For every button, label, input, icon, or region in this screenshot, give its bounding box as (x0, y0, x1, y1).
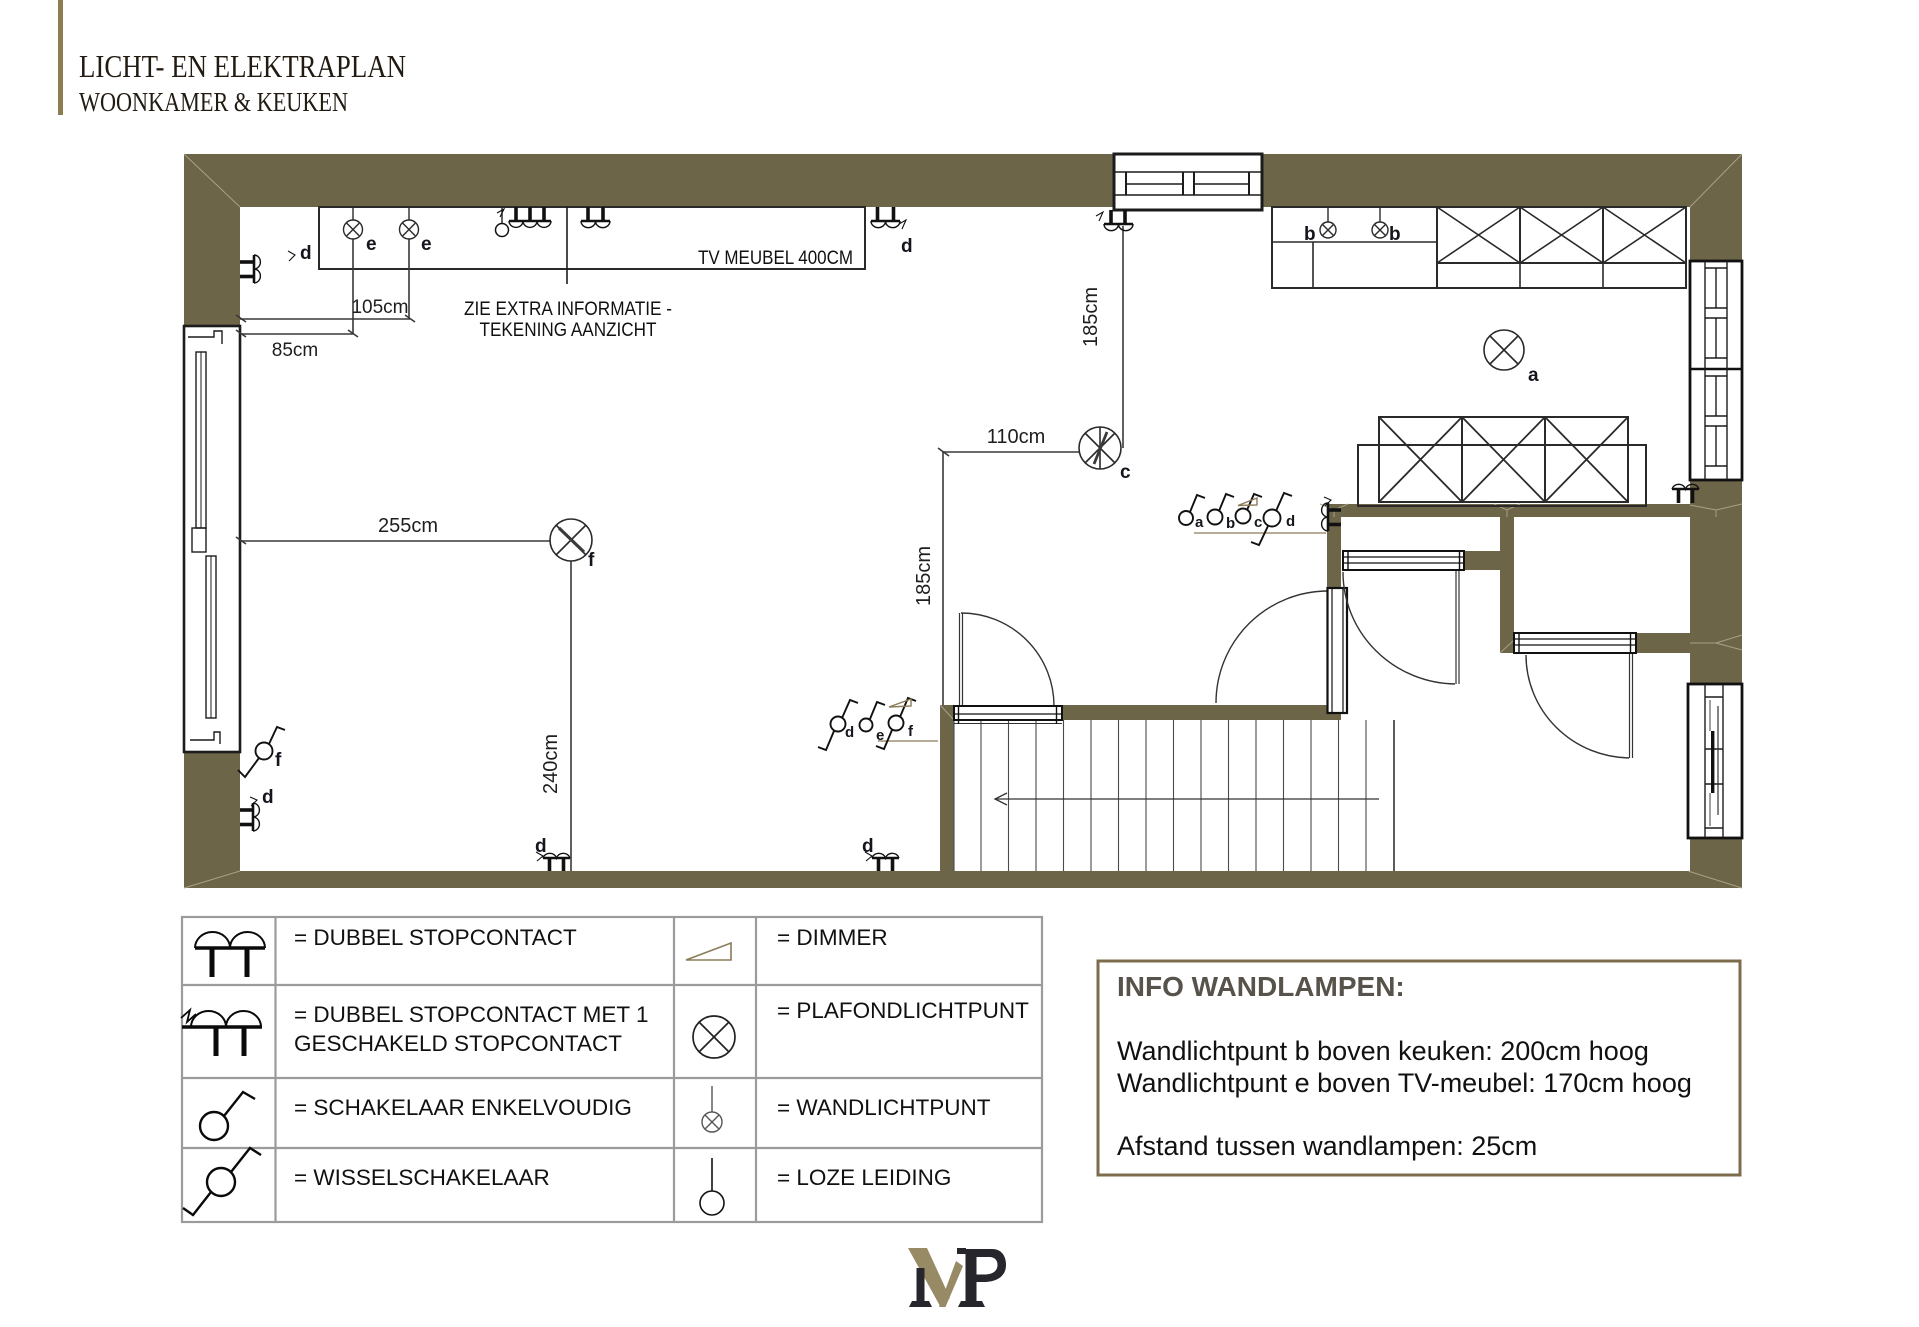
svg-text:ZIE EXTRA INFORMATIE -: ZIE EXTRA INFORMATIE - (464, 299, 672, 320)
svg-text:= PLAFONDLICHTPUNT: = PLAFONDLICHTPUNT (777, 998, 1029, 1023)
svg-text:e: e (421, 234, 432, 255)
svg-text:d: d (1286, 513, 1295, 530)
svg-text:= SCHAKELAAR ENKELVOUDIG: = SCHAKELAAR ENKELVOUDIG (294, 1095, 632, 1120)
svg-text:Wandlichtpunt b boven keuken:: Wandlichtpunt b boven keuken: 200cm hoog (1117, 1036, 1649, 1066)
svg-text:Afstand tussen wandlampen: 25c: Afstand tussen wandlampen: 25cm (1117, 1131, 1537, 1161)
svg-text:255cm: 255cm (378, 515, 438, 537)
svg-text:f: f (588, 550, 595, 571)
svg-text:TV MEUBEL 400CM: TV MEUBEL 400CM (698, 248, 853, 269)
svg-text:d: d (262, 787, 274, 808)
svg-text:85cm: 85cm (272, 340, 318, 361)
svg-text:Wandlichtpunt e boven TV-meube: Wandlichtpunt e boven TV-meubel: 170cm h… (1117, 1068, 1692, 1098)
svg-text:TEKENING AANZICHT: TEKENING AANZICHT (480, 320, 657, 341)
svg-text:185cm: 185cm (913, 546, 935, 606)
svg-text:b: b (1226, 515, 1235, 532)
svg-text:240cm: 240cm (540, 734, 562, 794)
svg-text:LICHT- EN ELEKTRAPLAN: LICHT- EN ELEKTRAPLAN (79, 48, 406, 84)
svg-text:WOONKAMER & KEUKEN: WOONKAMER & KEUKEN (79, 87, 348, 117)
svg-text:b: b (1304, 224, 1316, 245)
svg-text:d: d (901, 236, 913, 257)
svg-text:185cm: 185cm (1080, 287, 1102, 347)
svg-text:a: a (1528, 365, 1539, 386)
svg-text:c: c (1120, 462, 1131, 483)
svg-text:c: c (1254, 514, 1262, 531)
svg-text:d: d (535, 836, 547, 857)
svg-text:110cm: 110cm (987, 426, 1046, 448)
svg-text:= DUBBEL STOPCONTACT MET 1: = DUBBEL STOPCONTACT MET 1 (294, 1002, 648, 1027)
svg-text:e: e (876, 727, 884, 744)
svg-text:= DUBBEL STOPCONTACT: = DUBBEL STOPCONTACT (294, 925, 577, 950)
svg-text:= WISSELSCHAKELAAR: = WISSELSCHAKELAAR (294, 1165, 550, 1190)
svg-text:d: d (300, 243, 312, 264)
svg-text:= WANDLICHTPUNT: = WANDLICHTPUNT (777, 1095, 991, 1120)
svg-text:105cm: 105cm (351, 297, 408, 318)
svg-text:= DIMMER: = DIMMER (777, 925, 888, 950)
svg-text:GESCHAKELD STOPCONTACT: GESCHAKELD STOPCONTACT (294, 1031, 622, 1056)
svg-text:INFO WANDLAMPEN:: INFO WANDLAMPEN: (1117, 971, 1405, 1002)
svg-text:d: d (862, 836, 874, 857)
svg-text:e: e (366, 234, 377, 255)
svg-text:d: d (845, 724, 854, 741)
svg-text:a: a (1195, 514, 1204, 531)
svg-text:= LOZE LEIDING: = LOZE LEIDING (777, 1165, 951, 1190)
svg-text:b: b (1389, 224, 1401, 245)
svg-text:f: f (275, 750, 282, 771)
